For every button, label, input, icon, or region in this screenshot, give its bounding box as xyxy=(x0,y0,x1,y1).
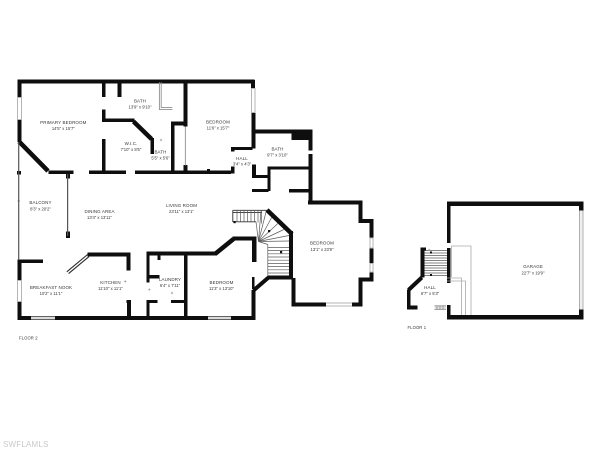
svg-text:W.I.C.: W.I.C. xyxy=(125,141,138,146)
svg-text:PRIMARY BEDROOM: PRIMARY BEDROOM xyxy=(40,120,86,125)
svg-text:FLOOR 1: FLOOR 1 xyxy=(408,325,427,330)
svg-text:BATH: BATH xyxy=(134,99,146,104)
svg-text:KITCHEN: KITCHEN xyxy=(100,280,120,285)
svg-text:SWFLAMLS: SWFLAMLS xyxy=(3,440,49,449)
svg-text:5'5" x 5'6": 5'5" x 5'6" xyxy=(151,155,170,160)
svg-text:3'4" x 4'3": 3'4" x 4'3" xyxy=(233,162,252,167)
svg-text:7'10" x 8'5": 7'10" x 8'5" xyxy=(121,147,142,152)
svg-text:LAUNDRY: LAUNDRY xyxy=(159,277,181,282)
svg-text:BEDROOM: BEDROOM xyxy=(206,120,230,125)
svg-text:FLOOR 2: FLOOR 2 xyxy=(19,336,38,341)
svg-text:BREAKFAST NOOK: BREAKFAST NOOK xyxy=(30,285,72,290)
svg-text:BATH: BATH xyxy=(271,147,283,152)
svg-text:BALCONY: BALCONY xyxy=(29,200,51,205)
svg-text:BEDROOM: BEDROOM xyxy=(310,241,334,246)
svg-text:LIVING ROOM: LIVING ROOM xyxy=(166,203,197,208)
svg-text:23'11" x 13'1": 23'11" x 13'1" xyxy=(169,209,194,214)
svg-text:6'7" x 5'3": 6'7" x 5'3" xyxy=(421,291,440,296)
svg-text:6'4" x 7'11": 6'4" x 7'11" xyxy=(160,283,181,288)
svg-text:BATH: BATH xyxy=(154,149,166,154)
svg-text:10'2" x 11'1": 10'2" x 11'1" xyxy=(40,291,63,296)
svg-text:HALL: HALL xyxy=(236,156,248,161)
svg-text:22'7" x 19'9": 22'7" x 19'9" xyxy=(522,270,545,275)
svg-text:14'5" x 15'7": 14'5" x 15'7" xyxy=(52,126,75,131)
svg-text:13'9" x 9'10": 13'9" x 9'10" xyxy=(129,104,152,109)
svg-text:BEDROOM: BEDROOM xyxy=(210,280,234,285)
svg-text:8'3" x 20'2": 8'3" x 20'2" xyxy=(30,206,51,211)
svg-text:DINING AREA: DINING AREA xyxy=(84,209,114,214)
svg-text:GARAGE: GARAGE xyxy=(523,264,543,269)
svg-text:11'3" x 13'10": 11'3" x 13'10" xyxy=(209,286,234,291)
svg-text:13'1" x 23'9": 13'1" x 23'9" xyxy=(311,247,334,252)
svg-text:9'7" x 3'10": 9'7" x 3'10" xyxy=(267,152,288,157)
svg-text:11'10" x 11'1": 11'10" x 11'1" xyxy=(98,286,123,291)
svg-text:11'6" x 15'7": 11'6" x 15'7" xyxy=(207,126,230,131)
svg-text:HALL: HALL xyxy=(424,285,436,290)
svg-text:13'4" x 13'11": 13'4" x 13'11" xyxy=(87,215,112,220)
